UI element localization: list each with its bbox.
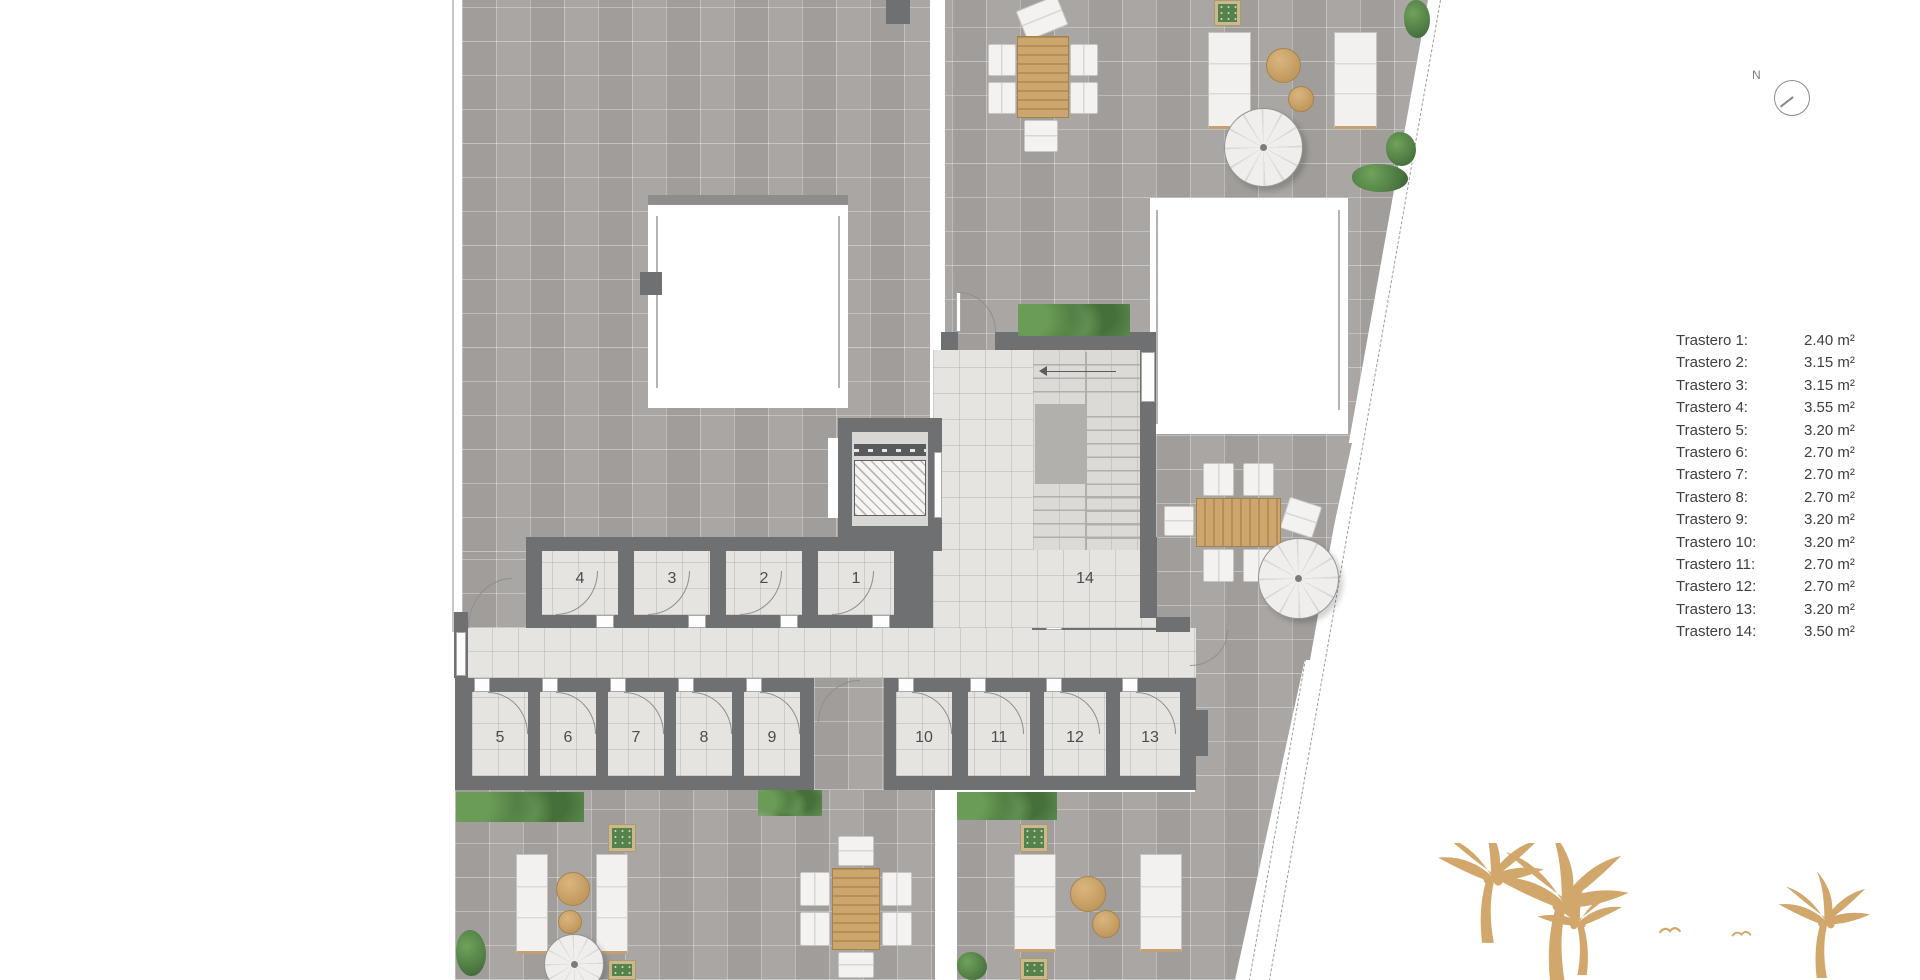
stair-landing — [1035, 404, 1085, 484]
door-sill — [898, 678, 914, 692]
wall — [1196, 710, 1208, 756]
legend-value: 3.50 m² — [1804, 621, 1855, 643]
legend-value: 2.40 m² — [1804, 330, 1855, 352]
stair-treads — [1033, 484, 1140, 548]
terrace-pillar — [640, 272, 662, 295]
dining-table — [1017, 36, 1069, 118]
shrub — [456, 930, 486, 976]
room-number: 9 — [757, 729, 787, 747]
door-sill — [1122, 678, 1138, 692]
room-number: 11 — [984, 729, 1014, 747]
skylight-void-1 — [648, 205, 848, 408]
door-sill — [610, 678, 626, 692]
legend-row: Trastero 8:2.70 m² — [1676, 487, 1855, 509]
legend-value: 2.70 m² — [1804, 554, 1855, 576]
side-table — [1288, 86, 1314, 112]
room-number: 2 — [749, 570, 779, 588]
door-sill — [474, 678, 490, 692]
door-sill — [780, 615, 798, 628]
door-sill — [456, 632, 466, 676]
side-table — [558, 910, 582, 934]
legend-label: Trastero 4: — [1676, 397, 1804, 419]
door-sill — [1046, 678, 1062, 692]
room-number: 14 — [1070, 570, 1100, 588]
door-sill — [596, 615, 614, 628]
legend-label: Trastero 3: — [1676, 375, 1804, 397]
hedge — [758, 790, 822, 816]
legend-row: Trastero 3:3.15 m² — [1676, 375, 1855, 397]
area-legend: Trastero 1:2.40 m² Trastero 2:3.15 m² Tr… — [1676, 330, 1855, 644]
legend-value: 3.20 m² — [1804, 420, 1855, 442]
planter — [608, 960, 636, 980]
chair — [882, 912, 912, 946]
side-table — [1092, 910, 1120, 938]
wall — [596, 692, 608, 776]
legend-row: Trastero 11:2.70 m² — [1676, 554, 1855, 576]
bird-icon — [1733, 932, 1751, 936]
legend-value: 3.15 m² — [1804, 352, 1855, 374]
legend-value: 3.55 m² — [1804, 397, 1855, 419]
wall — [618, 551, 634, 615]
wall — [732, 692, 744, 776]
chair — [800, 912, 830, 946]
dining-table — [1196, 498, 1281, 547]
legend-value: 3.20 m² — [1804, 509, 1855, 531]
stair-window-sill — [1141, 352, 1155, 402]
hedge — [957, 792, 1057, 820]
parasol-umbrella — [1224, 108, 1303, 187]
elevator-mechanism — [854, 444, 926, 456]
chair — [1070, 82, 1098, 114]
legend-value: 3.20 m² — [1804, 532, 1855, 554]
door-sill — [542, 678, 558, 692]
door-sill — [678, 678, 694, 692]
door-sill — [688, 615, 706, 628]
wall — [884, 776, 1196, 790]
door-sill — [746, 678, 762, 692]
room-number: 8 — [689, 729, 719, 747]
skylight-void-2 — [1150, 198, 1348, 434]
chair — [988, 82, 1016, 114]
room-number: 10 — [909, 729, 939, 747]
side-table — [1070, 876, 1106, 912]
wall — [838, 535, 942, 551]
sun-lounger — [516, 854, 548, 954]
shrub — [1352, 164, 1408, 192]
elevator-door-sill — [934, 452, 942, 518]
hedge — [456, 792, 584, 822]
planter — [608, 824, 636, 852]
legend-row: Trastero 9:3.20 m² — [1676, 509, 1855, 531]
legend-label: Trastero 7: — [1676, 464, 1804, 486]
legend-value: 2.70 m² — [1804, 442, 1855, 464]
chair — [1203, 549, 1234, 582]
wall — [455, 776, 814, 790]
legend-value: 2.70 m² — [1804, 576, 1855, 598]
storage-corridor — [466, 628, 1196, 678]
room-number: 6 — [553, 729, 583, 747]
sun-lounger — [1014, 854, 1056, 952]
planter — [1020, 824, 1048, 852]
sun-lounger — [596, 854, 628, 954]
plan-left-edge-line — [452, 0, 454, 632]
legend-label: Trastero 13: — [1676, 599, 1804, 621]
wall — [1156, 617, 1190, 632]
legend-label: Trastero 5: — [1676, 420, 1804, 442]
wall — [941, 332, 958, 350]
wall — [1180, 678, 1196, 790]
stair-treads — [1033, 352, 1140, 404]
elevator-car — [854, 460, 926, 516]
legend-value: 3.15 m² — [1804, 375, 1855, 397]
side-table — [1266, 48, 1301, 83]
wall — [710, 551, 726, 615]
chair — [1243, 463, 1274, 496]
skylight-shadow-band — [648, 195, 848, 205]
legend-row: Trastero 10:3.20 m² — [1676, 532, 1855, 554]
shrub — [1404, 0, 1430, 38]
legend-label: Trastero 2: — [1676, 352, 1804, 374]
legend-label: Trastero 8: — [1676, 487, 1804, 509]
room-number: 7 — [621, 729, 651, 747]
chair — [838, 952, 874, 978]
terrace-separation-strip-bottom — [935, 790, 957, 980]
legend-row: Trastero 1:2.40 m² — [1676, 330, 1855, 352]
chair — [1024, 120, 1058, 152]
chair — [1070, 44, 1098, 76]
legend-row: Trastero 4:3.55 m² — [1676, 397, 1855, 419]
palm-icon — [1779, 871, 1871, 978]
legend-row: Trastero 2:3.15 m² — [1676, 352, 1855, 374]
wall — [1106, 692, 1120, 776]
wall — [952, 692, 968, 776]
skylight-1-mullion-right — [838, 216, 840, 388]
skylight-2-mullion-right — [1338, 210, 1340, 410]
shrub — [957, 952, 987, 980]
wall — [884, 678, 1196, 692]
planter — [1214, 0, 1241, 26]
wall — [800, 692, 814, 776]
compass: N — [1752, 64, 1822, 120]
palm-trees-graphic — [1420, 843, 1920, 980]
legend-label: Trastero 6: — [1676, 442, 1804, 464]
legend-label: Trastero 12: — [1676, 576, 1804, 598]
legend-value: 3.20 m² — [1804, 599, 1855, 621]
legend-label: Trastero 10: — [1676, 532, 1804, 554]
chair — [882, 872, 912, 906]
legend-row: Trastero 5:3.20 m² — [1676, 420, 1855, 442]
legend-label: Trastero 11: — [1676, 554, 1804, 576]
parasol-umbrella — [1258, 538, 1339, 619]
skylight-2-mullion-left — [1156, 210, 1158, 424]
chair — [1203, 463, 1234, 496]
wall — [664, 692, 676, 776]
legend-label: Trastero 14: — [1676, 621, 1804, 643]
legend-value: 2.70 m² — [1804, 464, 1855, 486]
legend-label: Trastero 9: — [1676, 509, 1804, 531]
terrace-separation-strip-top — [930, 0, 945, 350]
sun-lounger — [1140, 854, 1182, 952]
door-sill — [970, 678, 986, 692]
chair — [988, 44, 1016, 76]
dining-table — [832, 868, 880, 950]
room-number: 13 — [1135, 729, 1165, 747]
chair — [838, 836, 874, 866]
legend-row: Trastero 13:3.20 m² — [1676, 599, 1855, 621]
room-number: 5 — [485, 729, 515, 747]
stair-direction-arrow — [1044, 371, 1116, 372]
core-lobby — [933, 550, 1156, 628]
skylight-1-mullion-left — [656, 216, 658, 388]
stair-arrow-head — [1034, 366, 1047, 376]
room-number: 4 — [565, 570, 595, 588]
door-sill — [872, 615, 890, 628]
legend-row: Trastero 7:2.70 m² — [1676, 464, 1855, 486]
side-table — [556, 872, 590, 906]
legend-row: Trastero 6:2.70 m² — [1676, 442, 1855, 464]
legend-row: Trastero 14:3.50 m² — [1676, 621, 1855, 643]
floor-plan-canvas: 4 3 2 1 14 5 6 7 8 9 10 11 12 13 — [0, 0, 1920, 980]
wall — [455, 678, 472, 790]
planter-hedge — [1018, 304, 1130, 336]
sun-lounger — [1334, 32, 1377, 129]
legend-label: Trastero 1: — [1676, 330, 1804, 352]
room-number: 1 — [841, 570, 871, 588]
planter — [1020, 958, 1048, 980]
wall — [1030, 692, 1044, 776]
stair-flight-divider — [1085, 352, 1087, 550]
legend-row: Trastero 12:2.70 m² — [1676, 576, 1855, 598]
bird-icon — [1660, 928, 1680, 932]
wall — [528, 692, 540, 776]
roof-vent-block — [886, 0, 910, 24]
chair — [800, 872, 830, 906]
room-number: 12 — [1060, 729, 1090, 747]
legend-value: 2.70 m² — [1804, 487, 1855, 509]
wall — [802, 551, 818, 615]
room-number: 3 — [657, 570, 687, 588]
chair — [1164, 506, 1194, 536]
compass-north-label: N — [1752, 68, 1761, 82]
wall — [884, 692, 896, 776]
shrub — [1386, 132, 1416, 166]
